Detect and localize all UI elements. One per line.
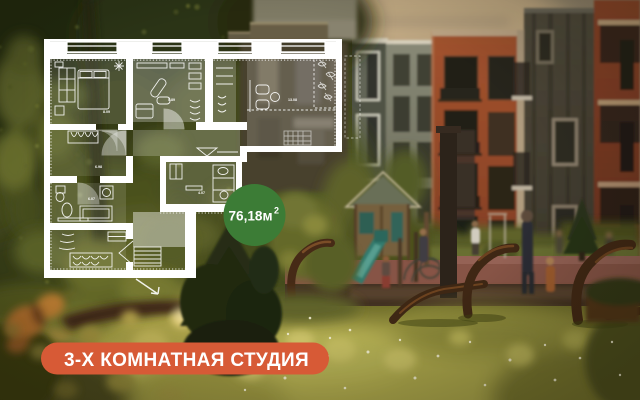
svg-text:13.08: 13.08 [288,98,297,102]
svg-text:5.89: 5.89 [168,98,175,102]
svg-text:3-Х КОМНАТНАЯ СТУДИЯ: 3-Х КОМНАТНАЯ СТУДИЯ [64,350,309,371]
svg-text:6.98: 6.98 [95,165,102,169]
svg-text:8.09: 8.09 [103,110,110,114]
svg-text:6.07: 6.07 [88,197,95,201]
svg-text:2: 2 [274,206,279,216]
svg-text:76,18м: 76,18м [228,209,272,224]
svg-text:4.07: 4.07 [198,191,205,195]
